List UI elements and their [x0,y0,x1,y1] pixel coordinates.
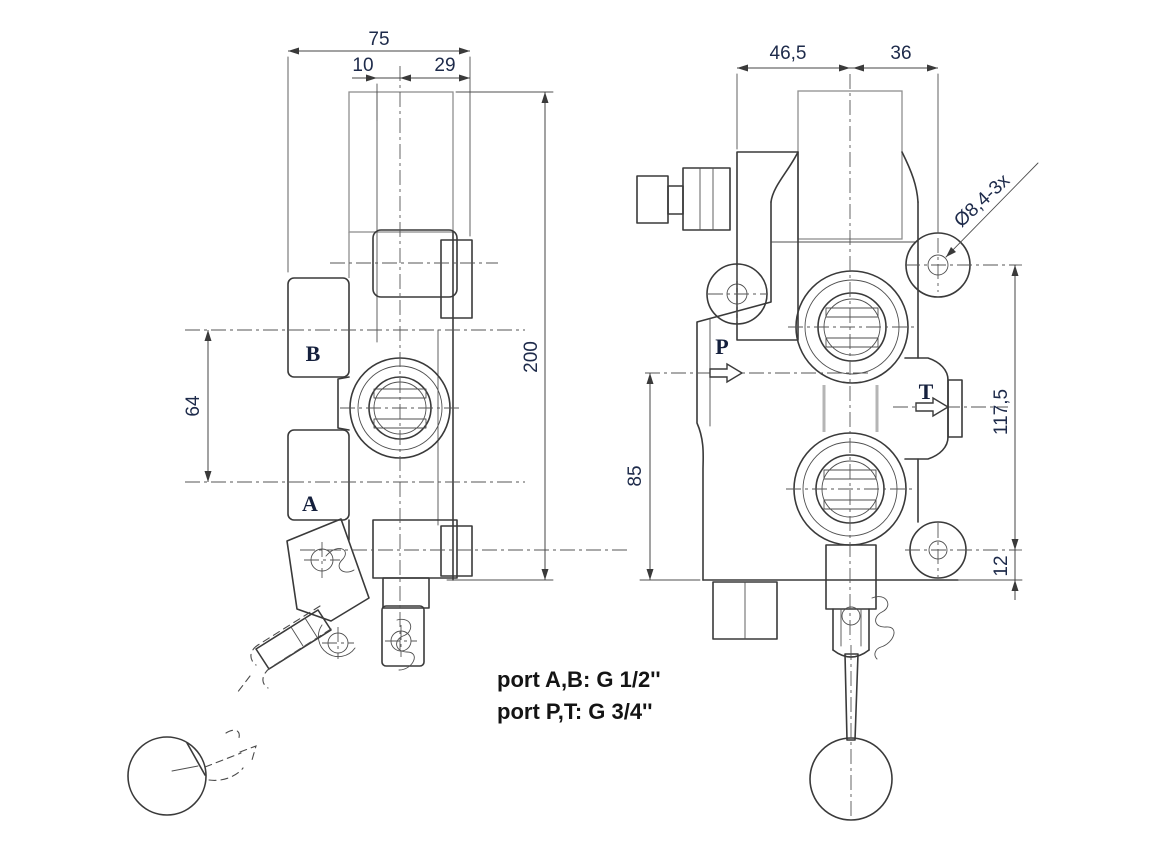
bottom-port-plug [713,582,777,639]
left-view-dimensions: 75 10 29 200 64 [183,29,553,580]
dimension-200: 200 [521,92,549,580]
ball-handle-detail [128,730,256,815]
port-boss-A [288,430,349,520]
dimension-64: 64 [183,330,212,482]
control-lever [810,545,894,820]
port-T-face [948,380,962,437]
dim-text-85: 85 [625,465,646,486]
dim-text-29: 29 [434,55,455,76]
valve-dimensional-drawing: B A 75 10 29 200 [0,0,1169,846]
port-label-b: B [306,341,321,366]
left-view-lever-clevis [237,519,369,693]
dimension-117-5: 117,5 [991,265,1019,550]
lever-shaft [845,654,858,740]
dim-text-117-5: 117,5 [991,389,1012,435]
technical-drawing-page: B A 75 10 29 200 [0,0,1169,846]
dimension-46-5-36: 46,5 36 [737,43,938,72]
left-view-top-cap [373,230,472,318]
right-view: P T [637,74,1022,820]
dim-text-200: 200 [521,341,542,373]
port-size-notes: port A,B: G 1/2'' port P,T: G 3/4'' [497,667,661,724]
dim-text-75: 75 [368,29,389,50]
dimension-75: 75 [288,29,470,55]
flow-arrow-p [710,364,742,382]
dim-text-12: 12 [991,555,1012,576]
port-label-a: A [302,491,318,516]
port-label-p: P [715,334,728,359]
dim-text-10: 10 [352,55,373,76]
right-view-dimensions: 46,5 36 Ø8,4-3x 85 117,5 12 [625,43,1038,600]
left-view-notch [338,377,349,430]
cotter-pin [397,619,415,670]
dim-text-hole: Ø8,4-3x [950,170,1014,232]
dim-text-64: 64 [183,395,204,417]
dim-text-46-5: 46,5 [770,43,807,64]
relief-valve-fitting [637,168,730,230]
left-view-bottom-cap [373,520,472,670]
dim-text-36: 36 [890,43,911,64]
dimension-12: 12 [991,550,1019,600]
hole-callout: Ø8,4-3x [946,163,1038,257]
note-line-1: port A,B: G 1/2'' [497,667,661,692]
note-line-2: port P,T: G 3/4'' [497,699,653,724]
dimension-10-29: 10 29 [352,55,470,82]
right-view-flange [737,152,798,340]
left-view-upper-column [349,92,453,232]
port-label-t: T [919,379,934,404]
dimension-85: 85 [625,373,654,580]
